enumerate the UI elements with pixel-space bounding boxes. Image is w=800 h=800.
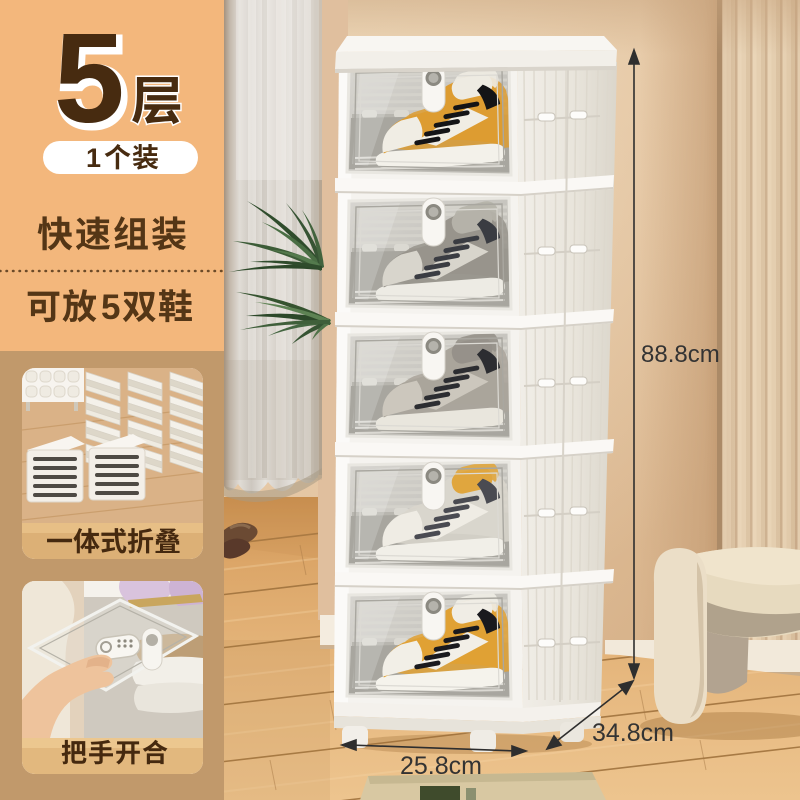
svg-text:88.8cm: 88.8cm [641, 341, 720, 368]
svg-text:5: 5 [54, 7, 125, 149]
svg-text:5: 5 [101, 288, 120, 327]
svg-text:34.8cm: 34.8cm [592, 719, 674, 747]
svg-text:1: 1 [86, 143, 101, 173]
svg-text:25.8cm: 25.8cm [400, 752, 482, 780]
